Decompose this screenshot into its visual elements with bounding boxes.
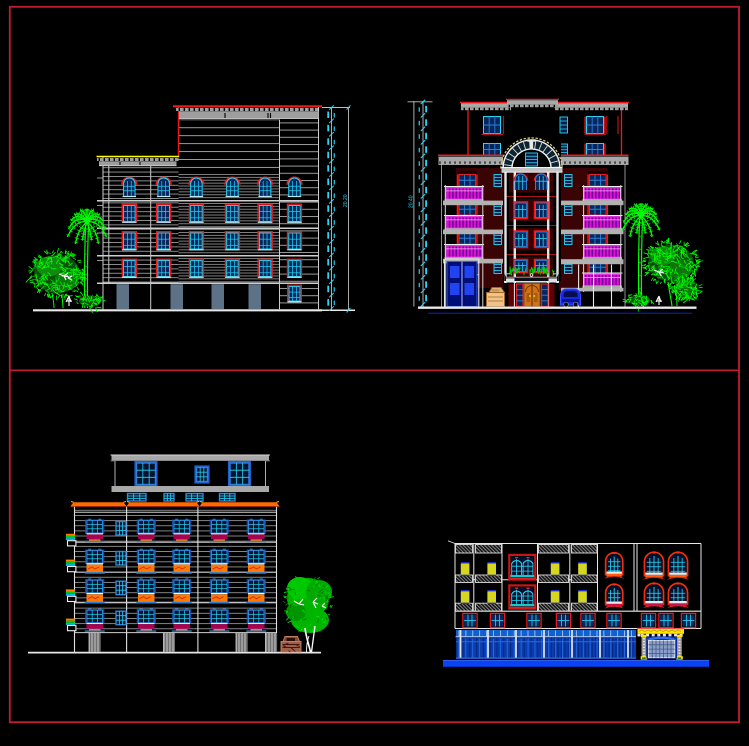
svg-text:20.20: 20.20 <box>343 194 349 207</box>
svg-text:20.40: 20.40 <box>409 195 415 208</box>
